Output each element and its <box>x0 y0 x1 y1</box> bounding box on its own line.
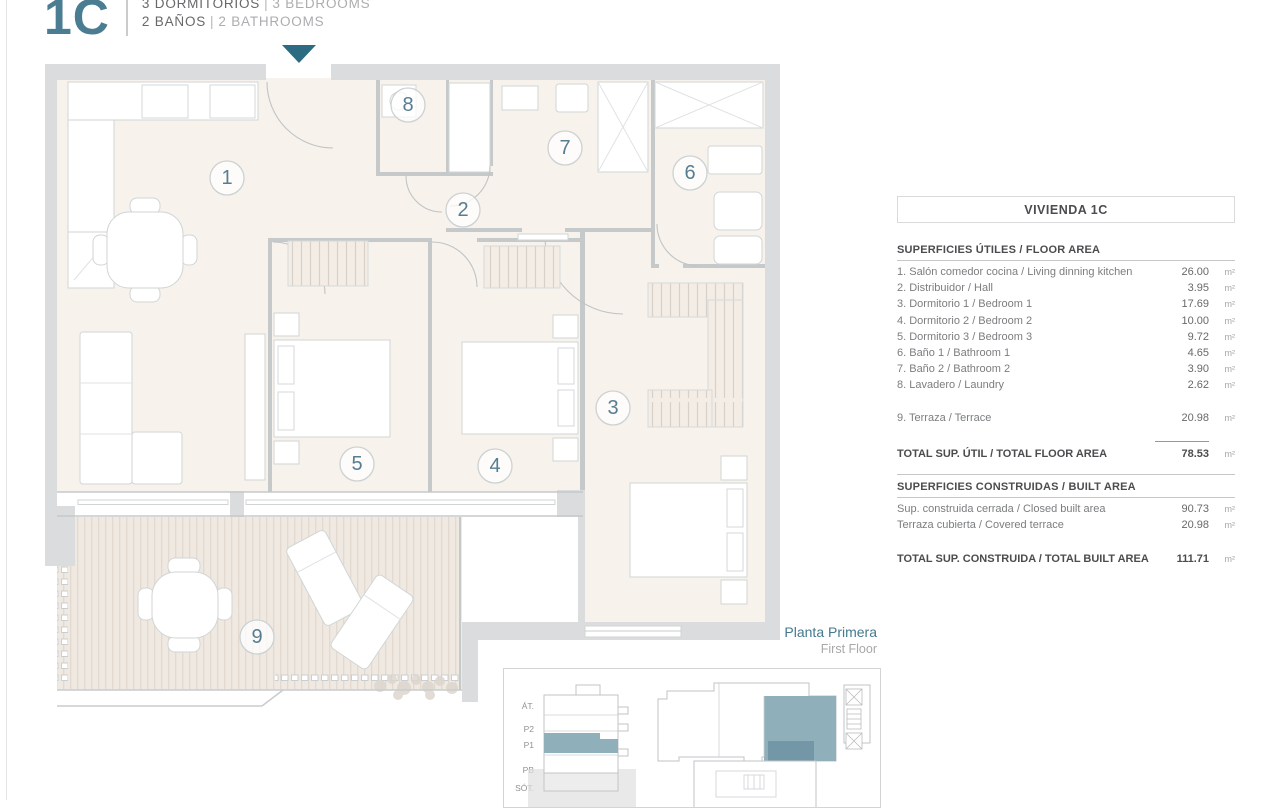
room-label-8: 8 <box>391 88 425 122</box>
terrace-row: 9. Terraza / Terrace20.98m² <box>897 412 1235 428</box>
room-label-5: 5 <box>340 447 374 481</box>
floor-name-es: Planta Primera <box>503 624 877 641</box>
room-label-1: 1 <box>210 161 244 195</box>
room-label-3: 3 <box>596 391 630 425</box>
svg-text:4: 4 <box>489 455 500 477</box>
svg-text:9: 9 <box>251 626 262 648</box>
table-row: 5. Dormitorio 3 / Bedroom 39.72m² <box>897 331 1235 347</box>
table-row: 6. Baño 1 / Bathroom 14.65m² <box>897 347 1235 363</box>
room-label-4: 4 <box>478 449 512 483</box>
room-label-2: 2 <box>446 193 480 227</box>
key-plan <box>658 683 870 808</box>
duct-shaft <box>449 83 490 172</box>
table-row: 1. Salón comedor cocina / Living dinning… <box>897 266 1235 282</box>
subtotal-rule <box>897 441 1235 442</box>
wardrobe <box>288 241 368 286</box>
pocket-door <box>518 234 568 240</box>
bidet <box>714 236 762 264</box>
table-row: 4. Dormitorio 2 / Bedroom 210.00m² <box>897 315 1235 331</box>
entrance-arrow-icon <box>282 45 316 63</box>
svg-text:8: 8 <box>402 94 413 116</box>
svg-text:P1: P1 <box>524 740 535 750</box>
svg-text:3: 3 <box>607 397 618 419</box>
section-divider <box>897 474 1235 475</box>
built-area-header: SUPERFICIES CONSTRUIDAS / BUILT AREA <box>897 481 1235 498</box>
table-row: Sup. construida cerrada / Closed built a… <box>897 503 1235 519</box>
stairs-elevator <box>846 689 862 749</box>
vanity <box>708 146 762 174</box>
svg-text:ÁT.: ÁT. <box>522 701 534 711</box>
svg-text:2: 2 <box>457 199 468 221</box>
svg-text:6: 6 <box>684 162 695 184</box>
railing-left <box>57 566 68 686</box>
total-built-area-row: TOTAL SUP. CONSTRUIDA / TOTAL BUILT AREA… <box>897 553 1235 565</box>
room-label-6: 6 <box>673 156 707 190</box>
toilet <box>714 192 762 230</box>
railing-bottom <box>275 672 461 684</box>
stove <box>142 85 188 118</box>
terrace-table <box>152 572 218 638</box>
floor-area-rows: 1. Salón comedor cocina / Living dinning… <box>897 266 1235 396</box>
svg-text:7: 7 <box>559 137 570 159</box>
room-label-9: 9 <box>240 620 274 654</box>
site-plan-box: ÁT. P2 P1 PB SÓT. <box>503 668 881 808</box>
svg-text:5: 5 <box>351 453 362 475</box>
site-plan: ÁT. P2 P1 PB SÓT. <box>504 669 881 808</box>
tv-unit <box>245 334 265 480</box>
fridge <box>210 85 255 118</box>
cabinet <box>502 86 538 110</box>
sofa <box>80 332 132 484</box>
building-section: ÁT. P2 P1 PB SÓT. <box>515 685 636 808</box>
wardrobe <box>484 246 560 288</box>
panel-title: VIVIENDA 1C <box>897 196 1235 223</box>
floor-name-en: First Floor <box>503 641 877 658</box>
room-label-7: 7 <box>548 131 582 165</box>
table-row: Terraza cubierta / Covered terrace20.98m… <box>897 519 1235 535</box>
svg-text:P2: P2 <box>524 724 535 734</box>
lower-wing <box>694 761 816 808</box>
table-row: 3. Dormitorio 1 / Bedroom 117.69m² <box>897 298 1235 314</box>
table-row: 8. Lavadero / Laundry2.62m² <box>897 379 1235 395</box>
floor-name: Planta Primera First Floor <box>503 624 877 658</box>
svg-text:1: 1 <box>221 167 232 189</box>
table-row: 2. Distribuidor / Hall3.95m² <box>897 282 1235 298</box>
sink <box>556 84 588 112</box>
table-row: 7. Baño 2 / Bathroom 23.90m² <box>897 363 1235 379</box>
total-floor-area-row: TOTAL SUP. ÚTIL / TOTAL FLOOR AREA78.53m… <box>897 448 1235 460</box>
floor-area-header: SUPERFICIES ÚTILES / FLOOR AREA <box>897 244 1235 261</box>
built-area-rows: Sup. construida cerrada / Closed built a… <box>897 503 1235 535</box>
area-panel: VIVIENDA 1C SUPERFICIES ÚTILES / FLOOR A… <box>897 196 1235 565</box>
